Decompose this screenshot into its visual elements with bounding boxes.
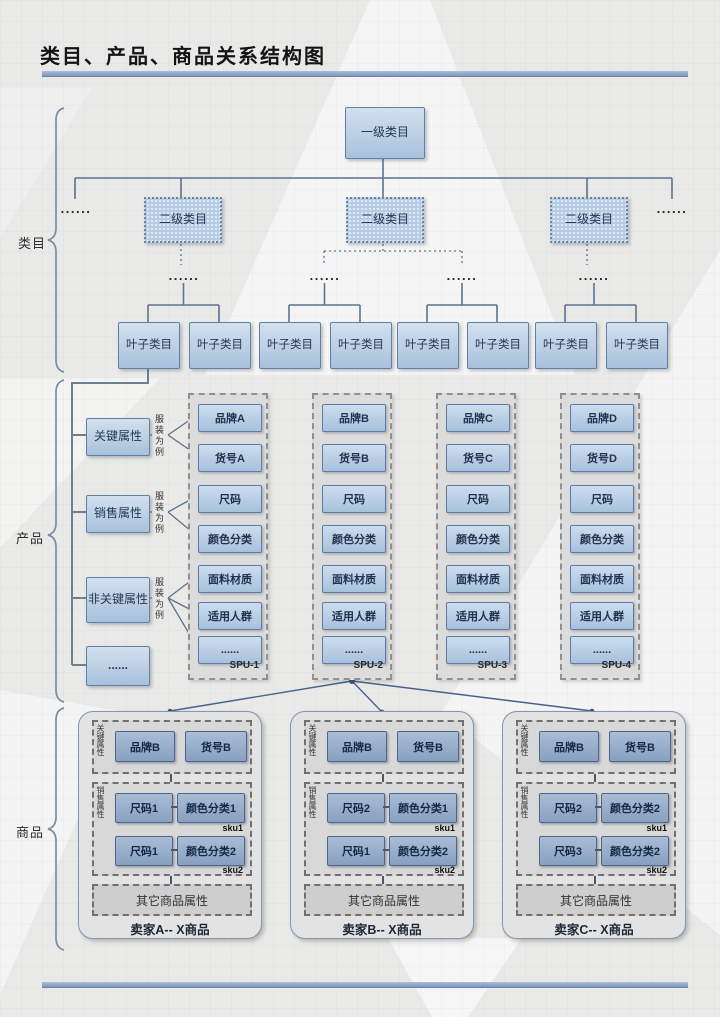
other-attributes-box: 其它商品属性 [516, 884, 676, 916]
brand-box: 品牌B [115, 731, 175, 762]
seller-card-c: 关键属性 品牌B 货号B 销售属性 尺码2 颜色分类2 sku1 尺码3 颜色分… [502, 711, 686, 939]
level2-category-box: 二级类目 [550, 197, 628, 243]
spu-attribute: 品牌D [570, 404, 634, 432]
attribute-box-sales: 销售属性 [86, 495, 150, 533]
spu-attribute: 尺码 [198, 485, 262, 513]
sales-attributes-vertical-label: 销售属性 [95, 786, 105, 818]
key-attributes-vertical-label: 关键属性 [519, 724, 529, 756]
spu-attribute: 尺码 [322, 485, 386, 513]
section-connector [382, 876, 384, 884]
section-label-catalog: 类目 [18, 233, 46, 252]
ellipsis-branch: ...... [568, 269, 620, 283]
sku-tag: sku1 [601, 823, 667, 833]
spu-label: SPU-4 [602, 660, 631, 671]
sku-size-box: 尺码1 [115, 793, 173, 823]
spu-attribute: 适用人群 [570, 602, 634, 630]
other-attributes-box: 其它商品属性 [92, 884, 252, 916]
sku-size-box: 尺码1 [327, 836, 385, 866]
sku-color-box: 颜色分类2 [389, 836, 457, 866]
leaf-category-box: 叶子类目 [606, 322, 668, 369]
attribute-box-key: 关键属性 [86, 418, 150, 456]
spu-label: SPU-2 [354, 660, 383, 671]
key-attributes-vertical-label: 关键属性 [95, 724, 105, 756]
level2-category-box: 二级类目 [144, 197, 222, 243]
section-connector [594, 774, 596, 782]
example-note: 服装为例 [152, 571, 166, 627]
sku-size-box: 尺码2 [327, 793, 385, 823]
section-label-product: 产品 [16, 528, 44, 547]
section-connector [170, 876, 172, 884]
spu-column-1: 品牌A 货号A 尺码 颜色分类 面料材质 适用人群 ...... SPU-1 [188, 393, 268, 680]
seller-label: 卖家C-- X商品 [503, 919, 685, 938]
spu-attribute: 尺码 [570, 485, 634, 513]
sales-attributes-vertical-label: 销售属性 [519, 786, 529, 818]
sku-size-box: 尺码2 [539, 793, 597, 823]
sku-size-box: 尺码1 [115, 836, 173, 866]
spu-attribute: 颜色分类 [570, 525, 634, 553]
brand-box: 品牌B [539, 731, 599, 762]
key-attributes-vertical-label: 关键属性 [307, 724, 317, 756]
leaf-category-box: 叶子类目 [535, 322, 597, 369]
seller-label: 卖家B-- X商品 [291, 919, 473, 938]
spu-attribute: 货号A [198, 444, 262, 472]
spu-attribute: 面料材质 [198, 565, 262, 593]
spu-attribute: 货号B [322, 444, 386, 472]
footer-rule [42, 982, 688, 988]
spu-attribute: 颜色分类 [198, 525, 262, 553]
leaf-category-box: 叶子类目 [397, 322, 459, 369]
sku-tag: sku2 [177, 865, 243, 875]
spu-attribute: 货号D [570, 444, 634, 472]
level2-category-box: 二级类目 [346, 197, 424, 243]
spu-attribute: 颜色分类 [322, 525, 386, 553]
leaf-category-box: 叶子类目 [118, 322, 180, 369]
spu-attribute: 颜色分类 [446, 525, 510, 553]
item-number-box: 货号B [185, 731, 247, 762]
other-attributes-box: 其它商品属性 [304, 884, 464, 916]
diagram-page: 类目、产品、商品关系结构图 类目 产品 商品 一级类目 二级类目 二级类目 二级… [0, 0, 720, 1017]
section-connector [594, 876, 596, 884]
spu-column-4: 品牌D 货号D 尺码 颜色分类 面料材质 适用人群 ...... SPU-4 [560, 393, 640, 680]
spu-attribute: 面料材质 [446, 565, 510, 593]
sku-color-box: 颜色分类2 [601, 793, 669, 823]
spu-column-2: 品牌B 货号B 尺码 颜色分类 面料材质 适用人群 ...... SPU-2 [312, 393, 392, 680]
sku-tag: sku1 [389, 823, 455, 833]
spu-label: SPU-1 [230, 660, 259, 671]
seller-card-a: 关键属性 品牌B 货号B 销售属性 尺码1 颜色分类1 sku1 尺码1 颜色分… [78, 711, 262, 939]
sku-color-box: 颜色分类2 [177, 836, 245, 866]
page-title: 类目、产品、商品关系结构图 [40, 40, 326, 69]
spu-label: SPU-3 [478, 660, 507, 671]
title-underline [42, 71, 688, 77]
spu-attribute: 品牌A [198, 404, 262, 432]
root-category-box: 一级类目 [345, 107, 425, 159]
seller-label: 卖家A-- X商品 [79, 919, 261, 938]
ellipsis-right: ...... [646, 202, 698, 216]
sku-tag: sku1 [177, 823, 243, 833]
ellipsis-branch: ...... [299, 269, 351, 283]
item-number-box: 货号B [397, 731, 459, 762]
leaf-category-box: 叶子类目 [467, 322, 529, 369]
spu-attribute: 面料材质 [570, 565, 634, 593]
leaf-category-box: 叶子类目 [330, 322, 392, 369]
sku-color-box: 颜色分类1 [389, 793, 457, 823]
sku-size-box: 尺码3 [539, 836, 597, 866]
spu-attribute: 适用人群 [198, 602, 262, 630]
leaf-category-box: 叶子类目 [259, 322, 321, 369]
sku-tag: sku2 [389, 865, 455, 875]
sku-color-box: 颜色分类2 [601, 836, 669, 866]
brand-box: 品牌B [327, 731, 387, 762]
seller-card-b: 关键属性 品牌B 货号B 销售属性 尺码2 颜色分类1 sku1 尺码1 颜色分… [290, 711, 474, 939]
section-connector [170, 774, 172, 782]
spu-attribute: 适用人群 [322, 602, 386, 630]
sku-tag: sku2 [601, 865, 667, 875]
sales-attributes-vertical-label: 销售属性 [307, 786, 317, 818]
attribute-box-nonkey: 非关键属性 [86, 577, 150, 623]
example-note: 服装为例 [152, 485, 166, 541]
spu-attribute: 货号C [446, 444, 510, 472]
spu-attribute: 尺码 [446, 485, 510, 513]
ellipsis-branch: ...... [436, 269, 488, 283]
spu-column-3: 品牌C 货号C 尺码 颜色分类 面料材质 适用人群 ...... SPU-3 [436, 393, 516, 680]
item-number-box: 货号B [609, 731, 671, 762]
spu-attribute: 适用人群 [446, 602, 510, 630]
spu-attribute: 面料材质 [322, 565, 386, 593]
spu-attribute: 品牌C [446, 404, 510, 432]
example-note: 服装为例 [152, 408, 166, 464]
sku-color-box: 颜色分类1 [177, 793, 245, 823]
ellipsis-branch: ...... [158, 269, 210, 283]
leaf-category-box: 叶子类目 [189, 322, 251, 369]
attribute-box-ellipsis: ...... [86, 646, 150, 686]
ellipsis-left: ...... [50, 202, 102, 216]
section-connector [382, 774, 384, 782]
spu-attribute: 品牌B [322, 404, 386, 432]
section-label-goods: 商品 [16, 822, 44, 841]
